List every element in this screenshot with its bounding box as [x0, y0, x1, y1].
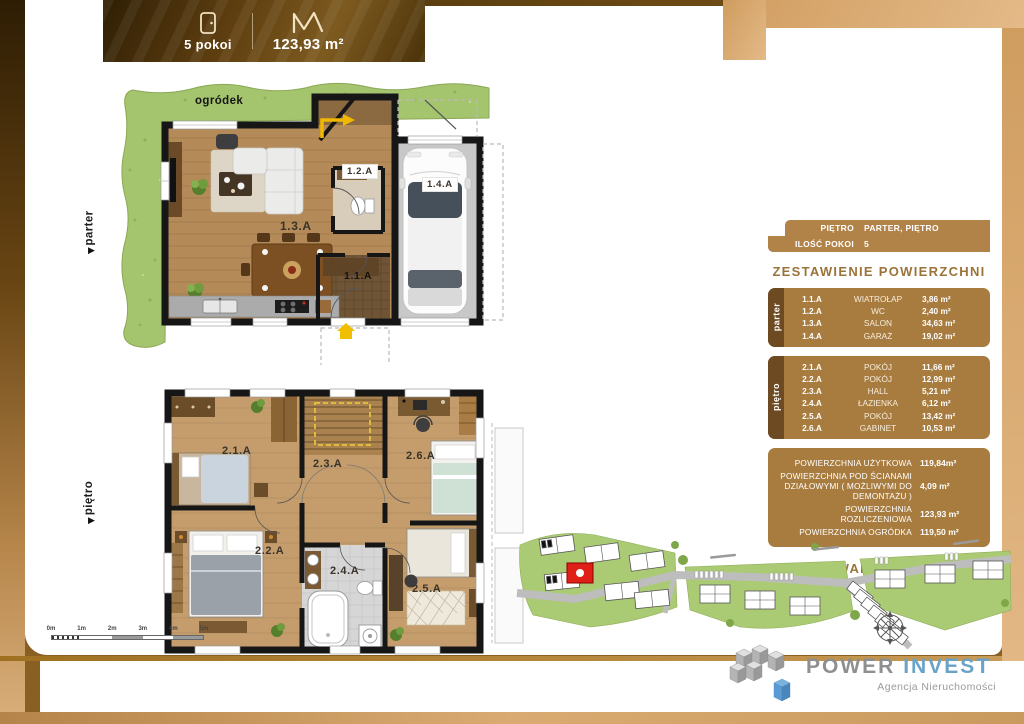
door-icon: [199, 11, 217, 35]
room-label-salon: 1.3.A: [280, 219, 312, 233]
scale-tick: 4m: [169, 626, 178, 632]
scale-tick: 3m: [138, 626, 147, 632]
coffee-table: [219, 172, 252, 196]
ground-floor-plan: [115, 80, 510, 365]
meta-row-rooms: ILOŚĆ POKOI 5: [768, 236, 990, 252]
panel-tab-parter: parter: [768, 288, 784, 347]
floor-marker-upper-arrow-icon: ▶: [88, 515, 95, 526]
room-label-lazienka: 2.4.A: [330, 565, 359, 577]
room-label-pokoj-3: 2.5.A: [412, 583, 441, 595]
room-label-gabinet: 2.6.A: [406, 450, 435, 462]
area-row: 2.2.A POKÓJ 12,99 m²: [790, 373, 986, 385]
area-row: 1.3.A SALON 34,63 m²: [790, 317, 986, 329]
meta-label: ILOŚĆ POKOI: [768, 239, 864, 249]
area-row: 2.1.A POKÓJ 11,66 m²: [790, 361, 986, 373]
meta-row-floor: PIĘTRO PARTER, PIĘTRO: [785, 220, 990, 236]
scale-tick: 5m: [200, 626, 209, 632]
room-label-wiatrolap: 1.1.A: [344, 270, 372, 282]
scale-bar-track: [51, 635, 204, 640]
upper-floor-plan: [155, 383, 525, 658]
site-plan: [515, 515, 1013, 655]
panel-tab-pietro: piętro: [768, 356, 784, 439]
tv: [170, 158, 176, 202]
scale-bar: 0m 1m 2m 3m 4m 5m: [45, 626, 215, 644]
area-row: 1.2.A WC 2,40 m²: [790, 305, 986, 317]
areas-title: ZESTAWIENIE POWIERZCHNI: [768, 264, 990, 279]
area-label: 123,93 m²: [273, 36, 344, 53]
area-row: 2.6.A GABINET 10,53 m²: [790, 422, 986, 434]
armchair: [216, 134, 238, 149]
header: 5 pokoi 123,93 m²: [103, 0, 425, 62]
frame-bottom: [0, 712, 1024, 724]
meta-value: 5: [864, 239, 990, 249]
highlighted-unit: [567, 563, 593, 583]
meta-label: PIĘTRO: [785, 223, 864, 233]
areas-panel-parter: parter 1.1.A WIATROŁAP 3,86 m² 1.2.A WC …: [768, 288, 990, 347]
area-item: 123,93 m²: [273, 10, 344, 53]
summary-row: POWIERZCHNIA UŻYTKOWA 119,84m²: [776, 458, 982, 468]
room-label-garaz: 1.4.A: [422, 177, 458, 192]
scale-tick: 1m: [77, 626, 86, 632]
brand-logo: POWER INVEST Agencja Nieruchomości: [722, 643, 1007, 707]
area-icon: [291, 10, 325, 34]
room-label-pokoj-1: 2.1.A: [222, 445, 251, 457]
scale-tick: 0m: [47, 626, 56, 632]
floor-marker-ground-arrow-icon: ▶: [88, 245, 95, 256]
stairs: [302, 393, 385, 455]
frame-top-right-band: [766, 0, 1024, 28]
logo-cubes-icon: [722, 643, 802, 709]
room-label-wc: 1.2.A: [342, 164, 378, 179]
frame-top-right-step: [723, 0, 766, 60]
meta-value: PARTER, PIĘTRO: [864, 223, 990, 233]
frame-left: [0, 0, 25, 724]
rooms-count-item: 5 pokoi: [184, 11, 232, 52]
area-row: 2.3.A HALL 5,21 m²: [790, 385, 986, 397]
brand-name: POWER INVEST: [806, 655, 991, 679]
areas-panel-pietro: piętro 2.1.A POKÓJ 11,66 m² 2.2.A POKÓJ …: [768, 356, 990, 439]
flyer-page: 5 pokoi 123,93 m² parter ▶ piętro ▶: [0, 0, 1024, 724]
car: [399, 148, 471, 314]
kitchen-counter: [169, 296, 339, 317]
room-label-hall: 2.3.A: [313, 458, 342, 470]
area-row: 1.4.A GARAŻ 19,02 m²: [790, 330, 986, 342]
area-row: 1.1.A WIATROŁAP 3,86 m²: [790, 293, 986, 305]
summary-row: POWIERZCHNIA POD ŚCIANAMI DZIAŁOWYMI ( M…: [776, 471, 982, 501]
scale-tick: 2m: [108, 626, 117, 632]
header-separator: [252, 13, 253, 49]
garden-label: ogródek: [195, 95, 243, 107]
area-row: 2.4.A ŁAZIENKA 6,12 m²: [790, 397, 986, 409]
brand-tagline: Agencja Nieruchomości: [806, 681, 996, 693]
rooms-count-label: 5 pokoi: [184, 37, 232, 52]
area-row: 2.5.A POKÓJ 13,42 m²: [790, 410, 986, 422]
room-label-pokoj-2: 2.2.A: [255, 545, 284, 557]
